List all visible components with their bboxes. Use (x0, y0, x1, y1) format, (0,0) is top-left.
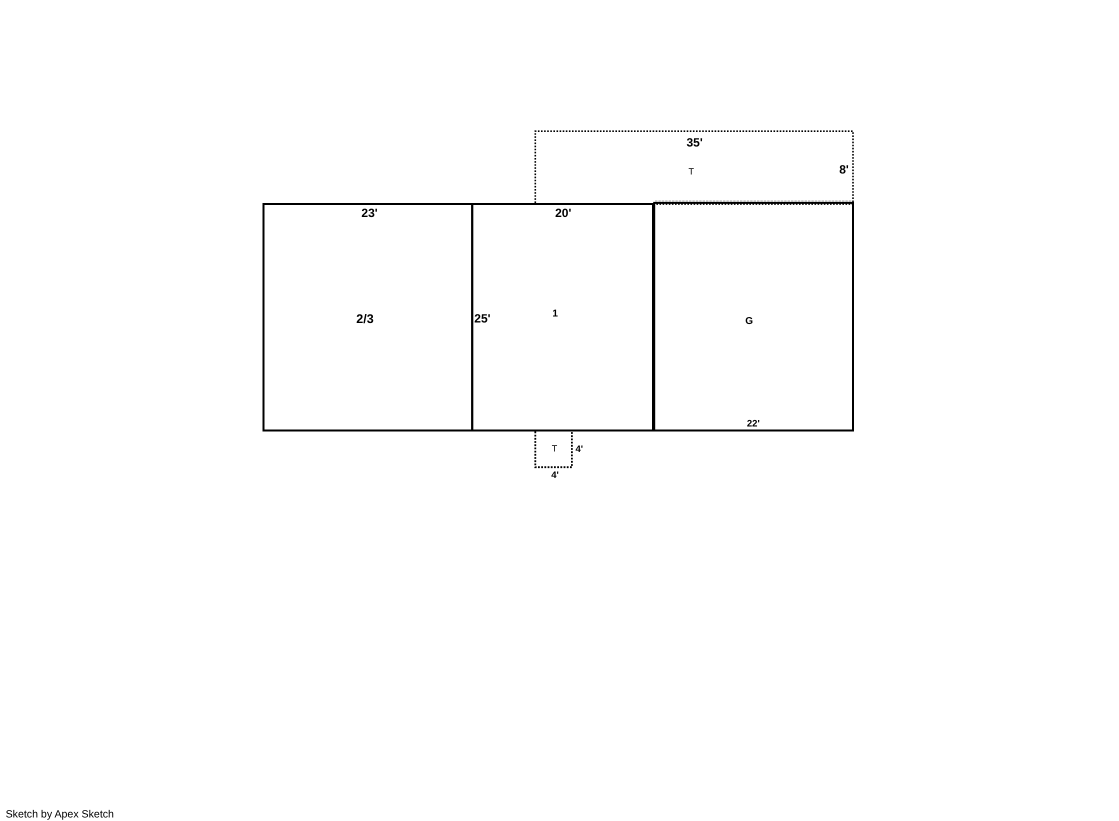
svg-text:T: T (689, 167, 695, 177)
svg-text:Sketch by Apex Sketch: Sketch by Apex Sketch (6, 809, 114, 821)
svg-text:G: G (745, 316, 753, 327)
svg-text:T: T (552, 444, 558, 454)
svg-text:4': 4' (551, 470, 559, 481)
svg-text:20': 20' (555, 206, 571, 220)
svg-text:4': 4' (576, 444, 584, 455)
svg-text:25': 25' (474, 312, 490, 326)
svg-text:1: 1 (552, 309, 558, 320)
svg-text:35': 35' (686, 136, 702, 150)
svg-text:23': 23' (361, 206, 377, 220)
svg-text:22': 22' (747, 419, 760, 430)
svg-text:8': 8' (839, 163, 849, 177)
svg-text:2/3: 2/3 (356, 312, 373, 326)
